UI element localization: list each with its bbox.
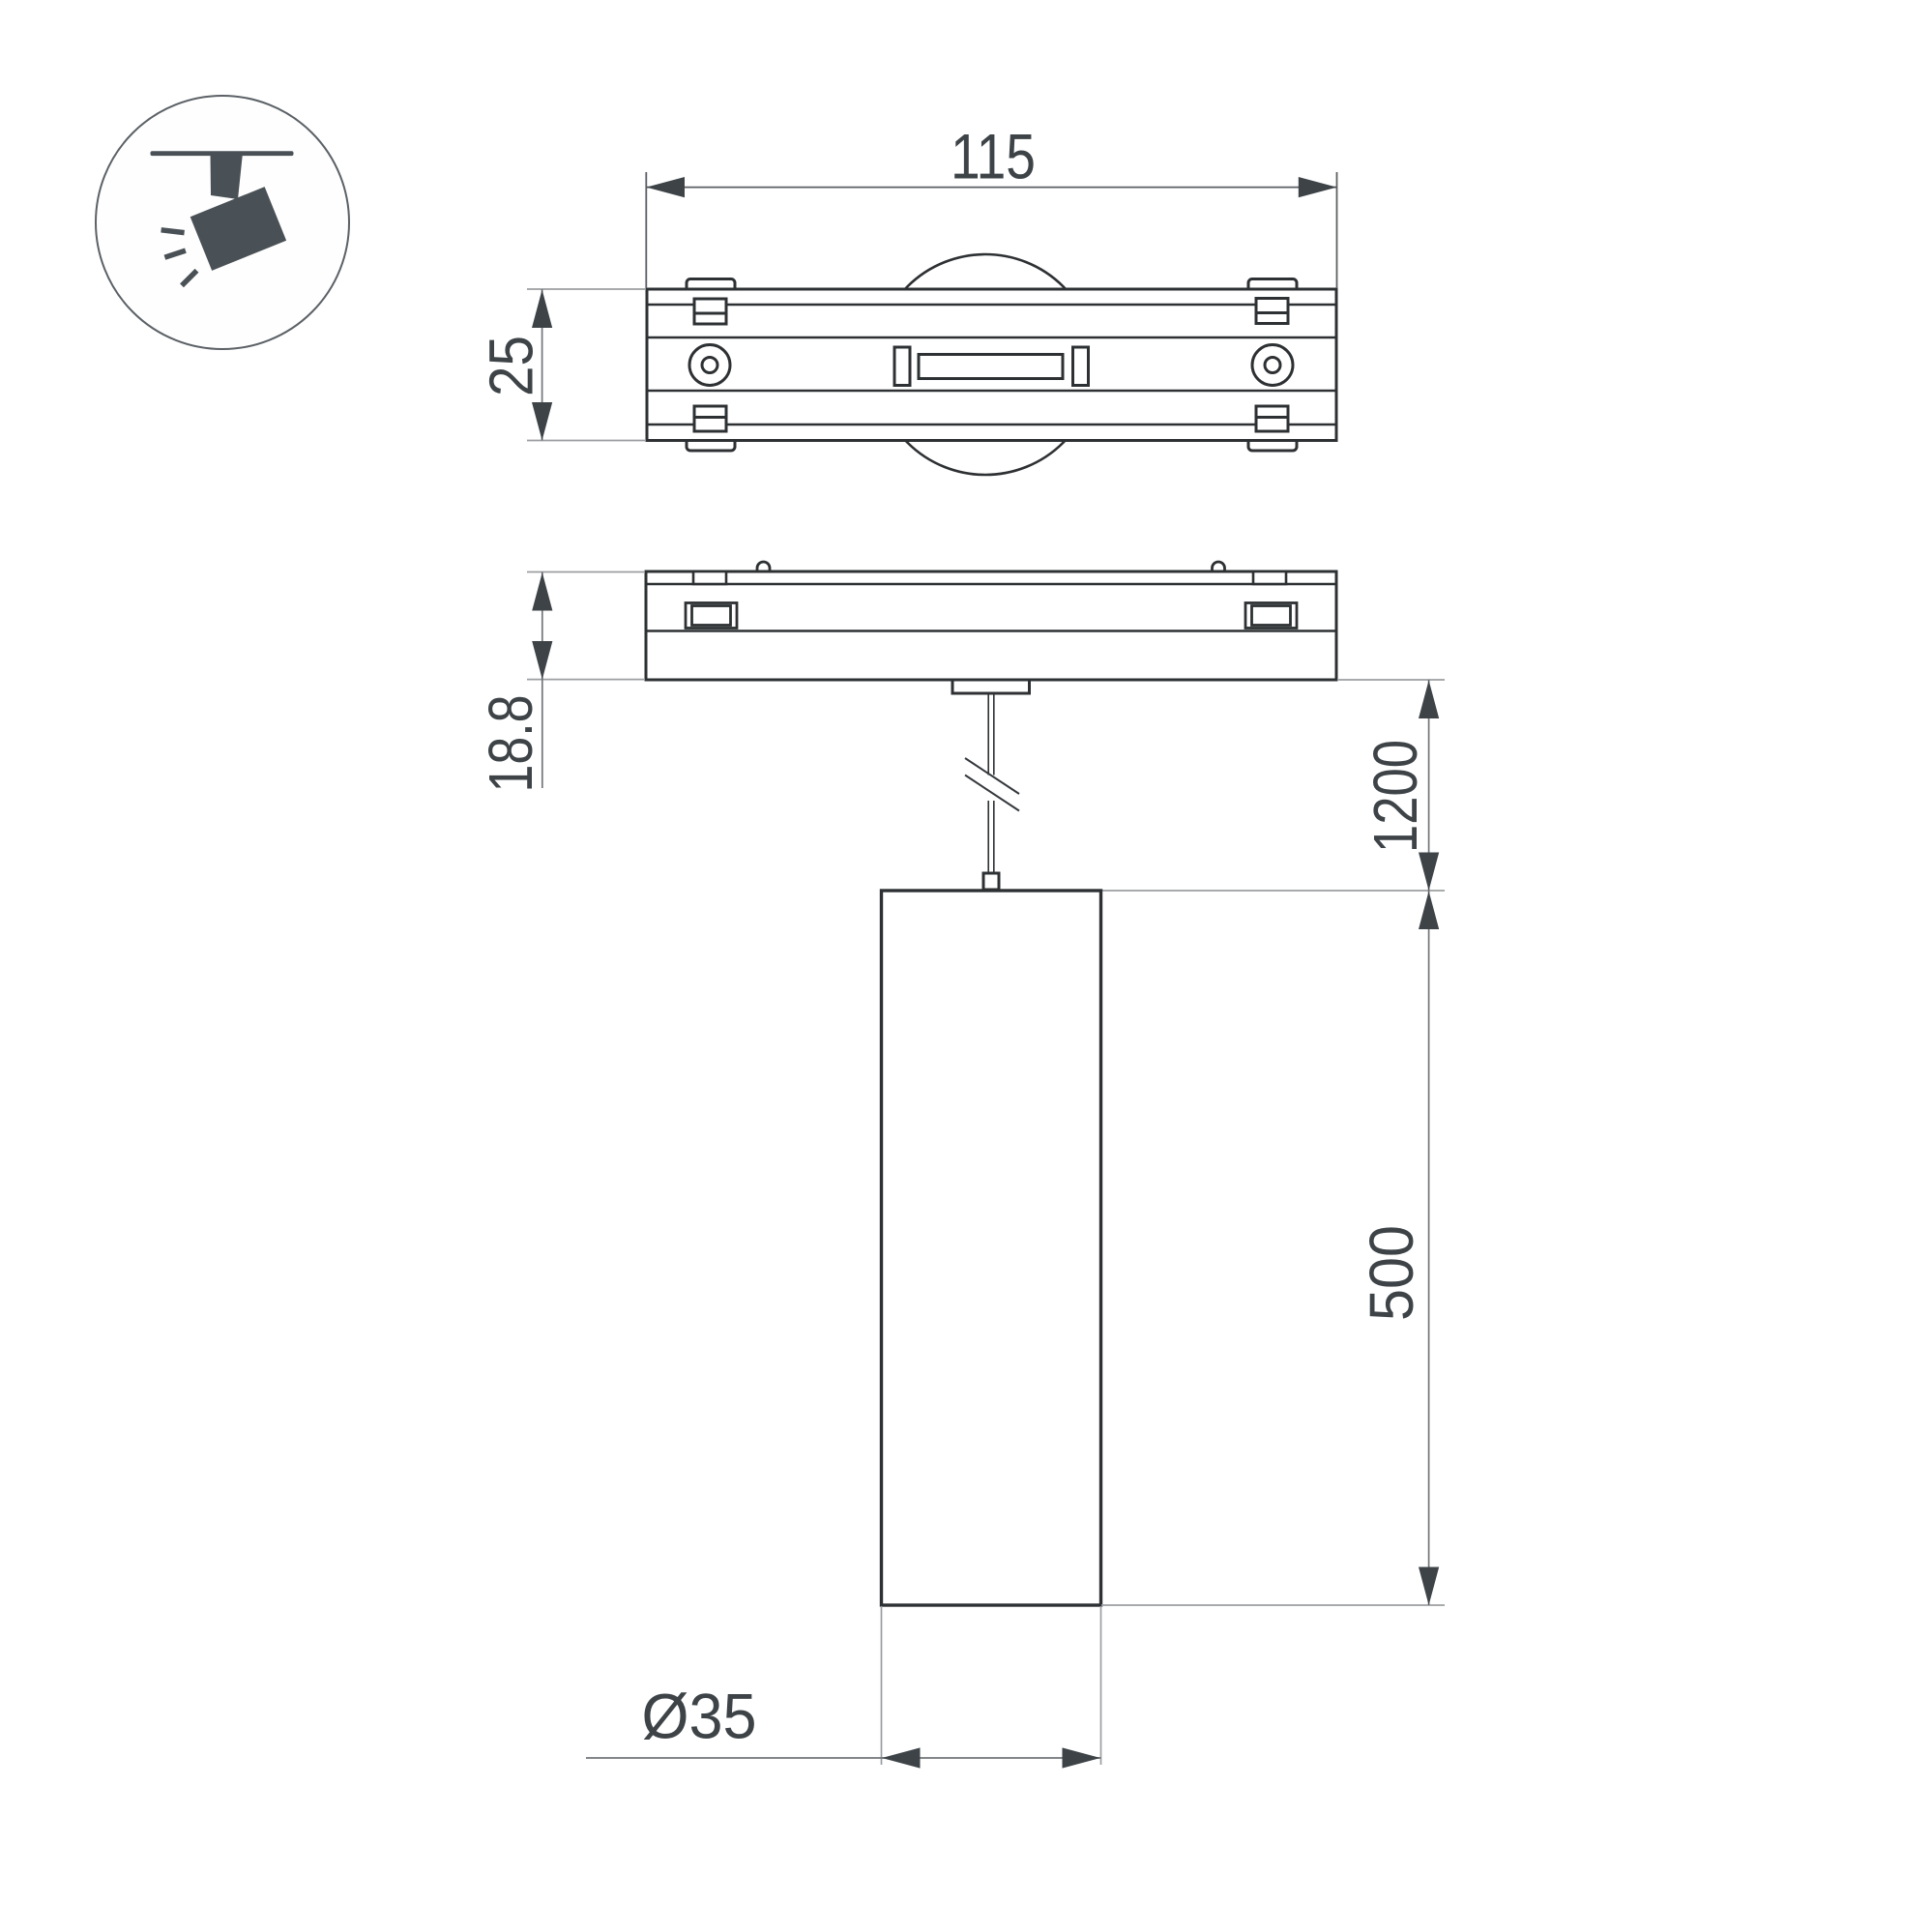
svg-text:500: 500 <box>1357 1225 1426 1321</box>
svg-text:115: 115 <box>951 121 1036 192</box>
svg-text:Ø35: Ø35 <box>642 1681 757 1752</box>
svg-text:18.8: 18.8 <box>476 695 545 793</box>
svg-text:1200: 1200 <box>1361 740 1430 853</box>
svg-text:25: 25 <box>477 336 546 396</box>
